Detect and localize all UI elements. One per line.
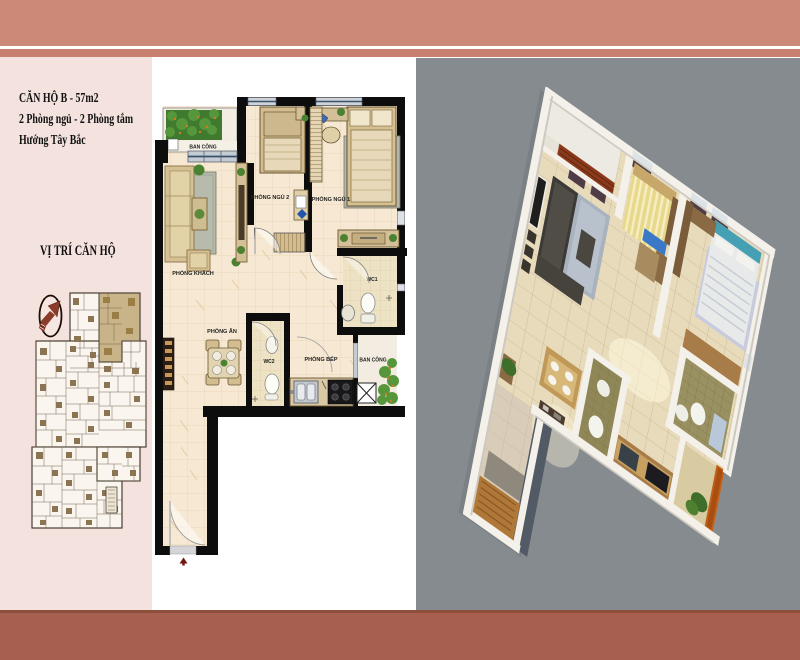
- svg-text:PHÒNG KHÁCH: PHÒNG KHÁCH: [172, 269, 214, 277]
- svg-text:PHÒNG NGỦ 1: PHÒNG NGỦ 1: [312, 195, 351, 203]
- svg-text:BAN CÔNG: BAN CÔNG: [189, 143, 216, 151]
- svg-text:BAN CÔNG: BAN CÔNG: [359, 356, 386, 364]
- svg-text:WC2: WC2: [263, 359, 274, 365]
- svg-text:PHÒNG ĂN: PHÒNG ĂN: [207, 327, 237, 335]
- svg-text:PHÒNG NGỦ 2: PHÒNG NGỦ 2: [251, 193, 290, 201]
- svg-text:PHÒNG BẾP: PHÒNG BẾP: [304, 355, 337, 363]
